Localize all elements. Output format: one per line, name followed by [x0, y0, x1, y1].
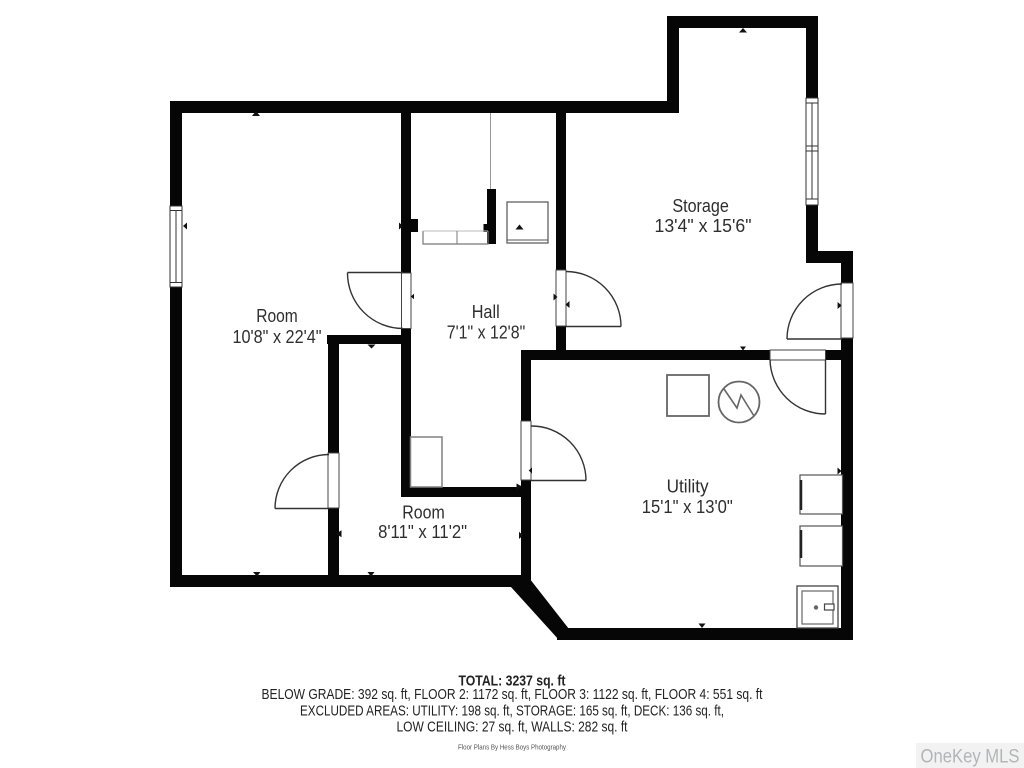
- svg-text:Room: Room: [402, 502, 445, 523]
- svg-text:EXCLUDED AREAS: UTILITY: 198 s: EXCLUDED AREAS: UTILITY: 198 sq. ft, STO…: [300, 702, 724, 719]
- svg-text:LOW CEILING: 27 sq. ft, WALLS:: LOW CEILING: 27 sq. ft, WALLS: 282 sq. f…: [397, 718, 629, 735]
- svg-text:Storage: Storage: [672, 195, 729, 216]
- svg-text:BELOW GRADE: 392 sq. ft, FLOOR: BELOW GRADE: 392 sq. ft, FLOOR 2: 1172 s…: [262, 686, 764, 703]
- svg-text:Utility: Utility: [667, 476, 710, 497]
- svg-text:Hall: Hall: [472, 301, 500, 322]
- svg-text:7'1" x 12'8": 7'1" x 12'8": [447, 322, 526, 343]
- svg-text:8'11" x 11'2": 8'11" x 11'2": [378, 521, 467, 542]
- svg-text:15'1" x 13'0": 15'1" x 13'0": [642, 496, 733, 517]
- svg-text:OneKey MLS: OneKey MLS: [921, 747, 1020, 768]
- svg-text:Floor Plans By Hess Boys Photo: Floor Plans By Hess Boys Photography: [458, 745, 566, 752]
- svg-text:13'4" x 15'6": 13'4" x 15'6": [655, 215, 752, 236]
- svg-text:10'8" x 22'4": 10'8" x 22'4": [233, 326, 322, 347]
- svg-text:Room: Room: [256, 305, 298, 326]
